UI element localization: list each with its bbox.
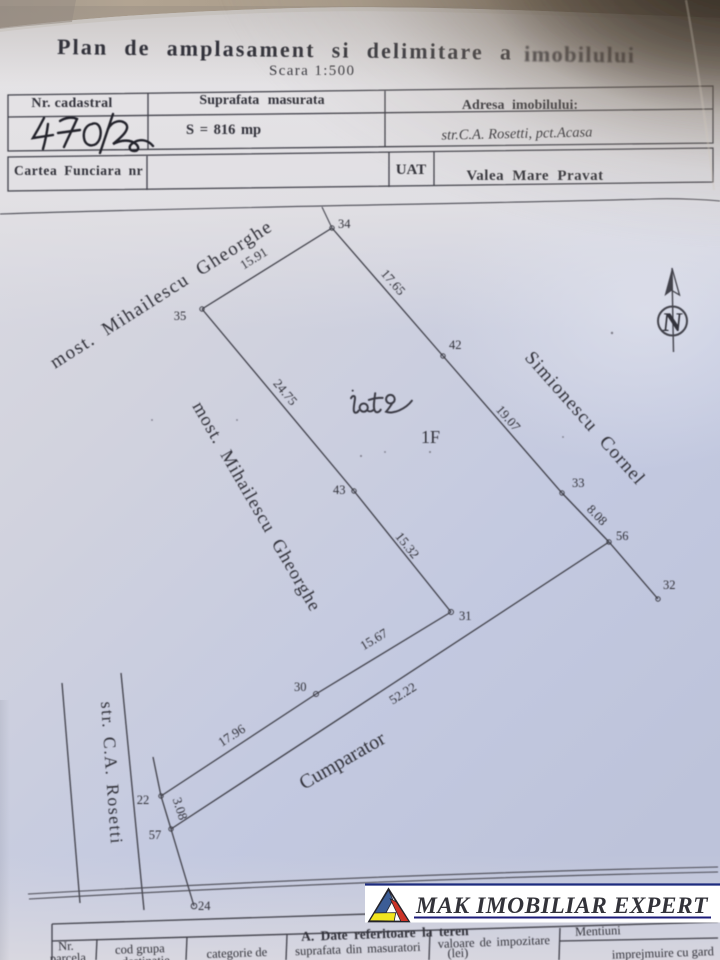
svg-text:30: 30 [294,680,307,694]
svg-text:32: 32 [663,578,676,592]
svg-text:Cartea Funciara nr: Cartea Funciara nr [14,163,143,178]
svg-text:43: 43 [333,483,346,497]
svg-text:1F: 1F [421,427,440,447]
svg-text:imprejmuire cu gard: imprejmuire cu gard [612,944,715,960]
svg-text:S = 816 mp: S = 816 mp [186,122,261,138]
svg-text:destinatie: destinatie [122,953,171,960]
svg-text:35: 35 [174,309,187,323]
svg-text:Mentiuni: Mentiuni [575,923,622,939]
svg-text:Nr. cadastral: Nr. cadastral [31,96,112,111]
svg-text:57: 57 [149,828,162,842]
svg-text:24: 24 [198,899,211,913]
svg-text:56: 56 [616,529,629,543]
svg-text:parcela: parcela [50,950,87,960]
svg-text:42: 42 [449,338,462,352]
svg-text:categorie de: categorie de [206,945,268,960]
svg-text:33: 33 [572,476,585,490]
svg-text:MAK IMOBILIAR EXPERT: MAK IMOBILIAR EXPERT [415,893,709,919]
svg-text:(lei): (lei) [447,946,468,960]
svg-text:N: N [661,307,684,337]
svg-text:34: 34 [338,217,351,231]
svg-text:22: 22 [137,793,150,807]
svg-text:31: 31 [459,609,472,623]
